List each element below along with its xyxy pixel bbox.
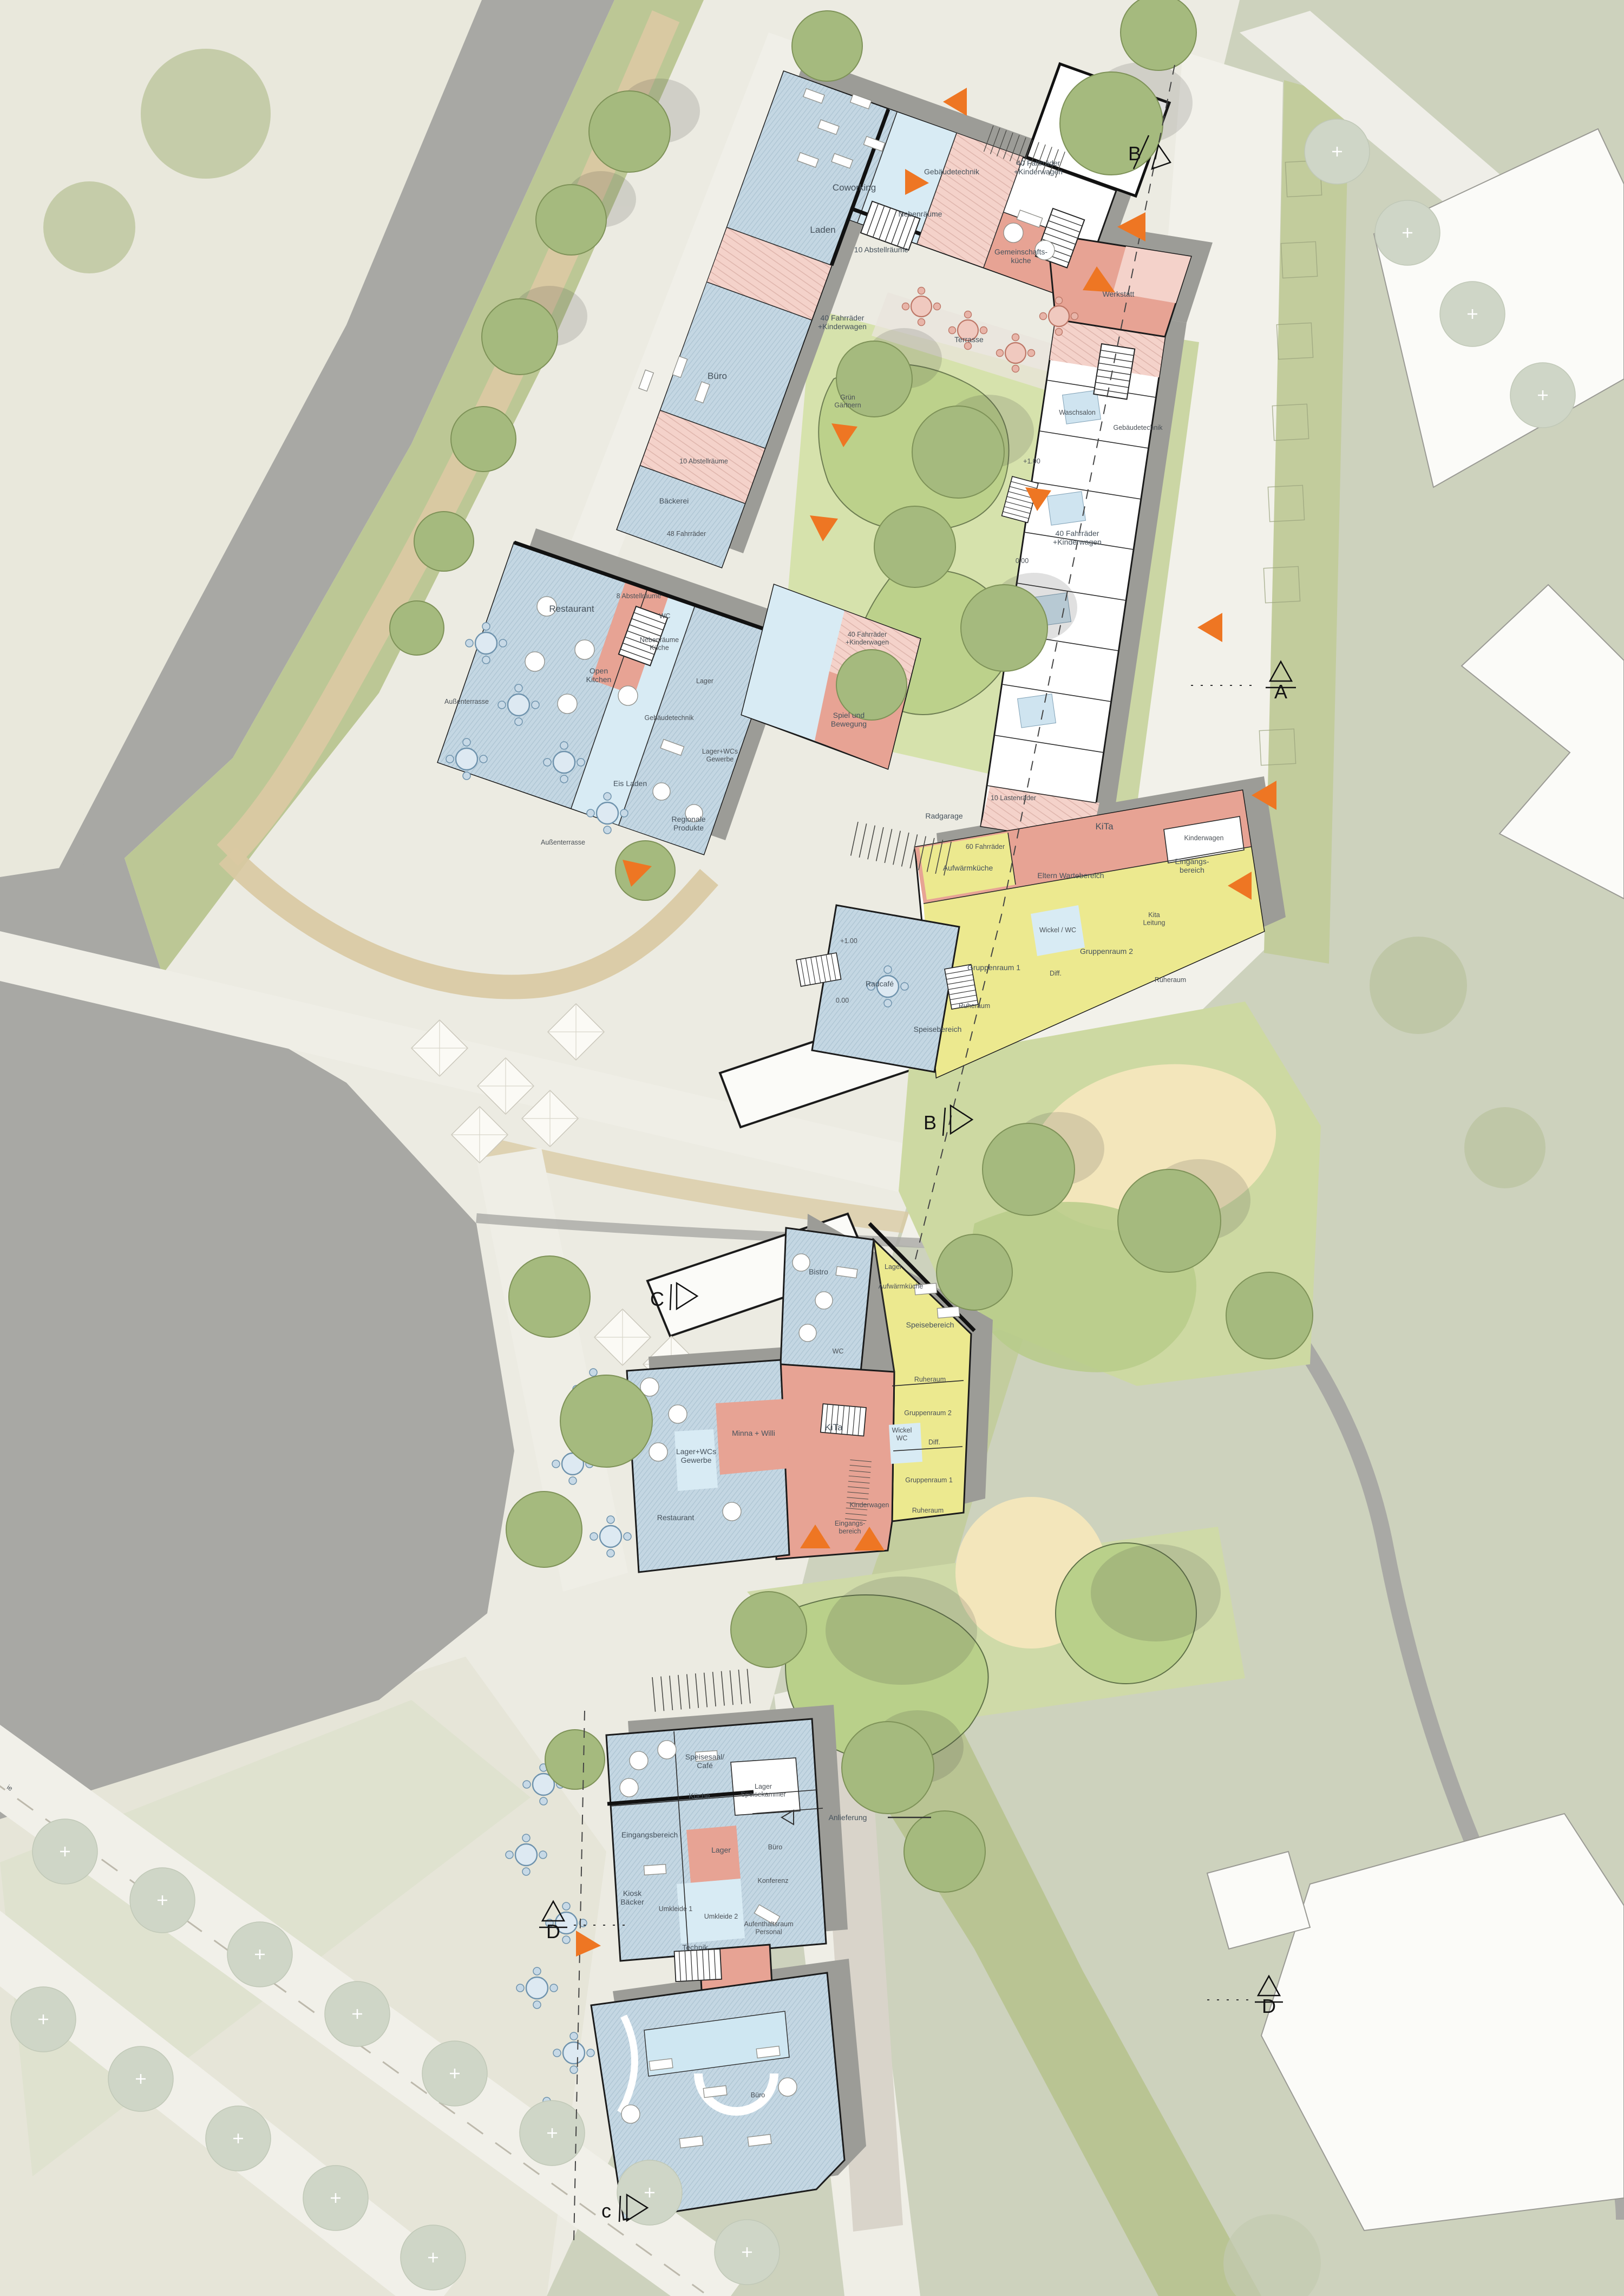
plan-label: Gebäudetechnik: [924, 167, 980, 176]
plan-label: Radcafé: [866, 979, 894, 988]
plan-label: Konferenz: [758, 1877, 789, 1885]
plan-label: 48 Fahrräder: [667, 530, 706, 538]
plan-label: 40 Fahrräder+Kinderwagen: [846, 631, 889, 646]
plan-label: Spiel undBewegung: [831, 711, 867, 728]
plan-label: Gruppenraum 1: [967, 963, 1020, 972]
plan-label: Gruppenraum 2: [1080, 947, 1133, 956]
plan-label: Ruheraum: [914, 1376, 946, 1383]
plan-label: Restaurant: [549, 604, 594, 614]
plan-label: Ruheraum: [1155, 976, 1186, 984]
section-marker-letter: B: [1128, 142, 1141, 165]
plan-label: Umkleide 2: [704, 1913, 738, 1920]
plan-label: Anlieferung: [829, 1813, 867, 1822]
plan-label: 40 Fahrräder+Kinderwagen: [1053, 529, 1102, 546]
plan-label: Büro: [708, 371, 727, 381]
plan-label: 0.00: [1016, 557, 1029, 565]
plan-label: Lager: [711, 1846, 731, 1854]
plan-label: Umkleide 1: [659, 1905, 693, 1913]
plan-label: Minna + Willi: [732, 1429, 775, 1437]
plan-label: WC: [833, 1347, 844, 1355]
section-marker-letter: D: [1262, 1995, 1276, 2017]
plan-label: Wickel / WC: [1039, 926, 1076, 934]
plan-label: Eltern Wartebereich: [1037, 871, 1104, 880]
plan-label: Büro: [768, 1843, 782, 1851]
plan-label: Eingangs-bereich: [1175, 857, 1209, 874]
plan-label: 10 Abstellräume: [679, 457, 728, 465]
plan-label: Technik: [682, 1943, 708, 1952]
plan-label: RegionaleProdukte: [671, 815, 705, 832]
section-marker-letter: B: [924, 1111, 937, 1134]
plan-label: Kinderwagen: [850, 1501, 889, 1509]
plan-label: +1.00: [840, 937, 857, 945]
plan-label: Ruheraum: [912, 1507, 944, 1514]
plan-label: Lager: [885, 1263, 902, 1271]
bottom-cluster: [591, 1669, 844, 2220]
section-marker-letter: c: [601, 2200, 611, 2222]
plan-label: Ruheraum: [959, 1002, 990, 1010]
plan-label: Speisebereich: [906, 1320, 954, 1329]
plan-label: Lager: [696, 677, 713, 685]
plan-label: Coworking: [833, 182, 876, 193]
site-plan-page: CoworkingLadenGebäudetechnikNebenräume40…: [0, 0, 1624, 2296]
plan-label: 40 Fahrräder+Kinderwagen: [1014, 159, 1063, 176]
plan-label: Diff.: [928, 1438, 940, 1446]
plan-label: 60 Fahrräder: [966, 843, 1005, 851]
plan-label: Laden: [810, 225, 835, 235]
section-marker-letter: C: [650, 1288, 664, 1310]
plan-label: Radgarage: [925, 812, 962, 820]
plan-label: OpenKitchen: [586, 666, 612, 684]
section-marker-letter: A: [1274, 681, 1287, 703]
plan-label: KioskBäcker: [620, 1889, 644, 1906]
plan-label: Außenterrasse: [444, 698, 489, 705]
site-plan: CoworkingLadenGebäudetechnikNebenräume40…: [0, 0, 1624, 2296]
plan-label: WC: [659, 612, 671, 620]
plan-label: Lager+WCsGewerbe: [702, 748, 738, 763]
plan-label: Gruppenraum 2: [904, 1409, 952, 1417]
plan-label: Aufwärmküche: [879, 1283, 924, 1290]
plan-label: 40 Fahrräder+Kinderwagen: [818, 313, 867, 331]
plan-label: Büro: [751, 2091, 765, 2099]
plan-label: Speisebereich: [914, 1025, 962, 1033]
plan-label: Bistro: [809, 1267, 828, 1276]
plan-label: 10 Lastenräder: [991, 794, 1036, 802]
plan-label: 10 Abstellräume: [854, 245, 909, 254]
plan-label: Lager+WCsGewerbe: [676, 1447, 716, 1464]
plan-label: Gebäudetechnik: [644, 714, 694, 722]
plan-label: Aufwärmküche: [943, 864, 993, 872]
plan-label: Restaurant: [657, 1513, 695, 1522]
plan-label: Eingangsbereich: [621, 1830, 678, 1839]
plan-label: KiTa: [824, 1422, 843, 1432]
plan-label: Terrasse: [954, 335, 984, 344]
plan-label: Eingangs-bereich: [835, 1520, 865, 1535]
plan-label: Küche: [689, 1791, 710, 1800]
plan-label: Diff.: [1050, 970, 1062, 977]
plan-label: Waschsalon: [1059, 409, 1096, 416]
plan-label: 8 Abstellräume: [617, 592, 662, 600]
plan-label: Gebäudetechnik: [1113, 424, 1163, 431]
plan-label: Gruppenraum 1: [905, 1476, 953, 1484]
plan-label: 0.00: [836, 997, 849, 1004]
plan-label: KiTa: [1095, 821, 1114, 832]
plan-label: Außenterrasse: [541, 839, 585, 846]
plan-label: +1.00: [1023, 457, 1040, 465]
plan-label: Bäckerei: [659, 496, 689, 505]
plan-label: Werkstatt: [1103, 290, 1135, 298]
plan-label: Nebenräume: [899, 210, 942, 218]
plan-label: Kinderwagen: [1184, 834, 1224, 842]
section-marker-letter: D: [546, 1920, 560, 1942]
plan-label: Eis Laden: [613, 779, 647, 788]
